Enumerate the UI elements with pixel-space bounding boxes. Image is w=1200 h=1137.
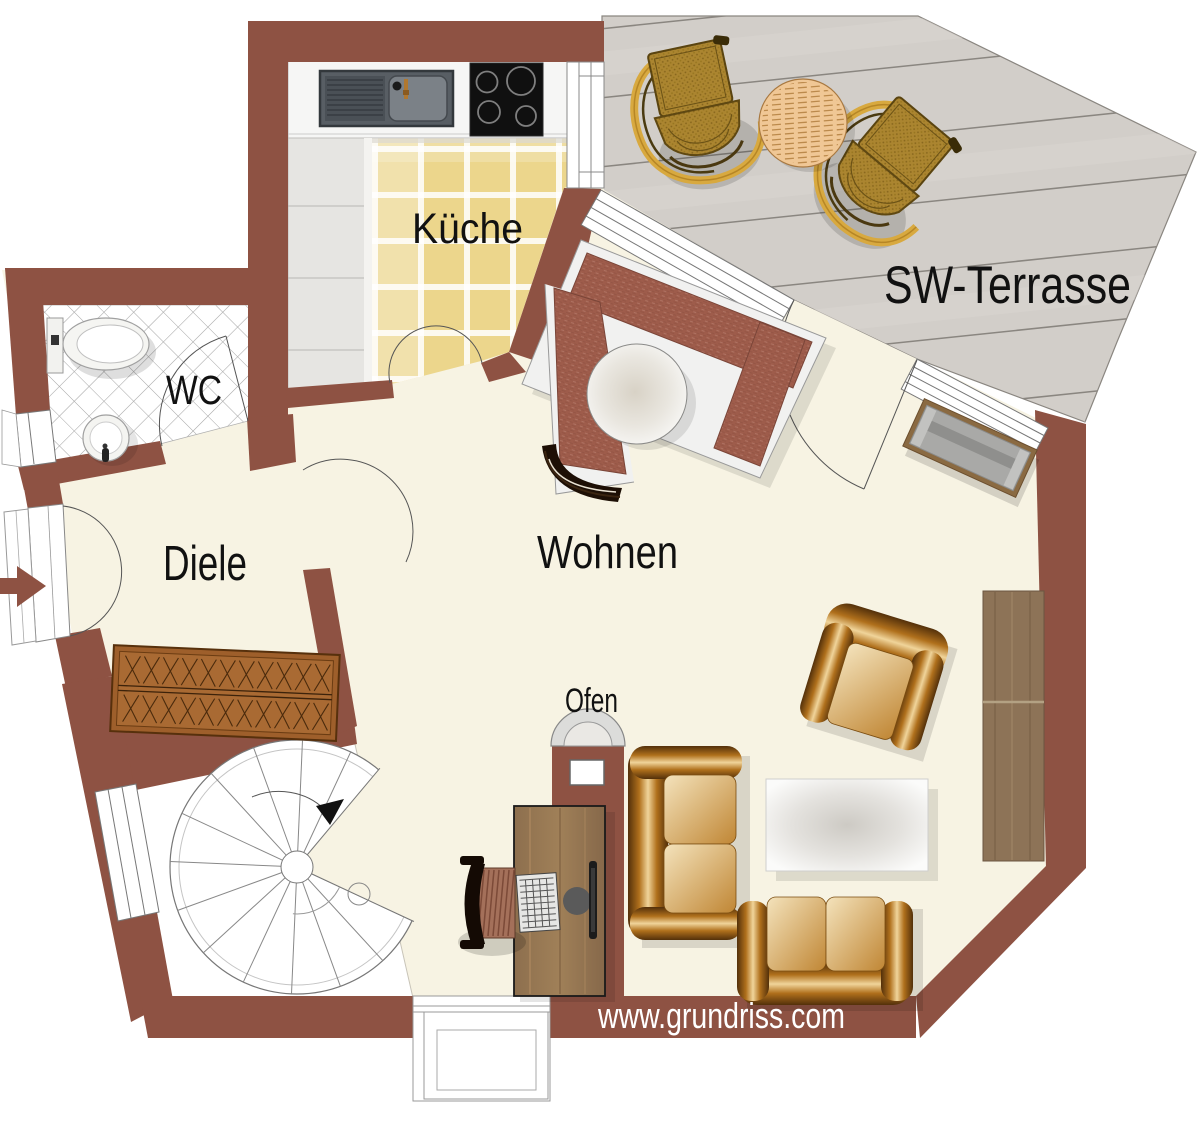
- svg-text:WC: WC: [166, 367, 222, 413]
- svg-text:SW-Terrasse: SW-Terrasse: [884, 256, 1131, 315]
- svg-text:Ofen: Ofen: [565, 682, 618, 720]
- svg-text:Wohnen: Wohnen: [537, 526, 678, 578]
- svg-text:www.grundriss.com: www.grundriss.com: [597, 995, 845, 1036]
- svg-text:Küche: Küche: [412, 205, 523, 253]
- svg-text:Diele: Diele: [163, 537, 247, 591]
